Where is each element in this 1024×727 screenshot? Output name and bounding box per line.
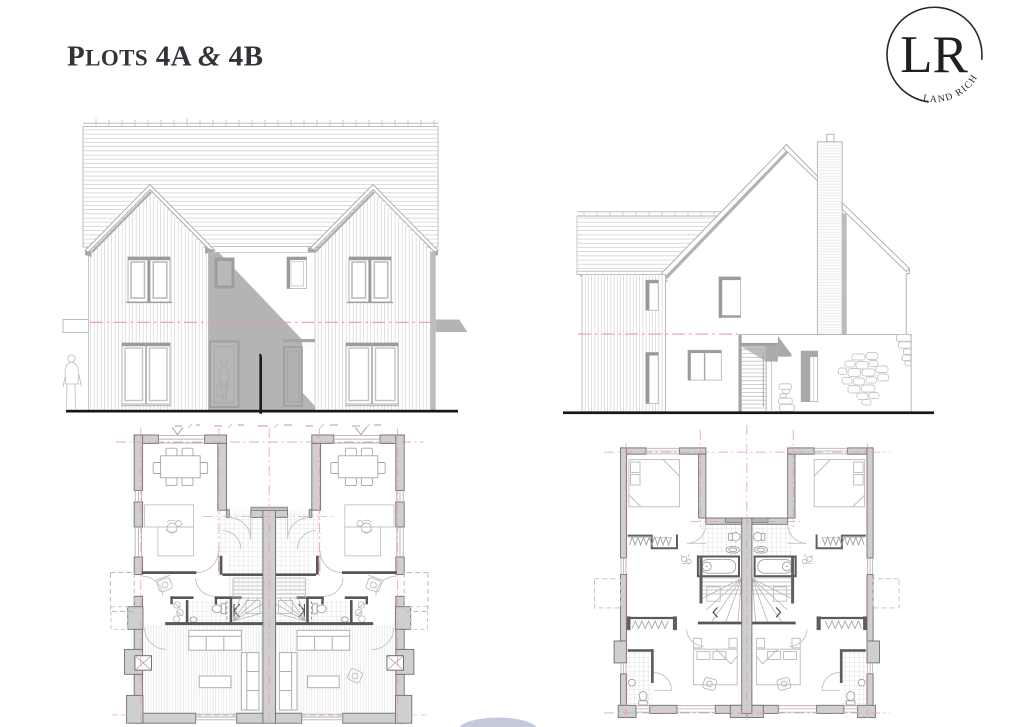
svg-text:LR: LR: [900, 26, 968, 84]
svg-text:PLOTS 4A & 4B: PLOTS 4A & 4B: [67, 41, 263, 73]
